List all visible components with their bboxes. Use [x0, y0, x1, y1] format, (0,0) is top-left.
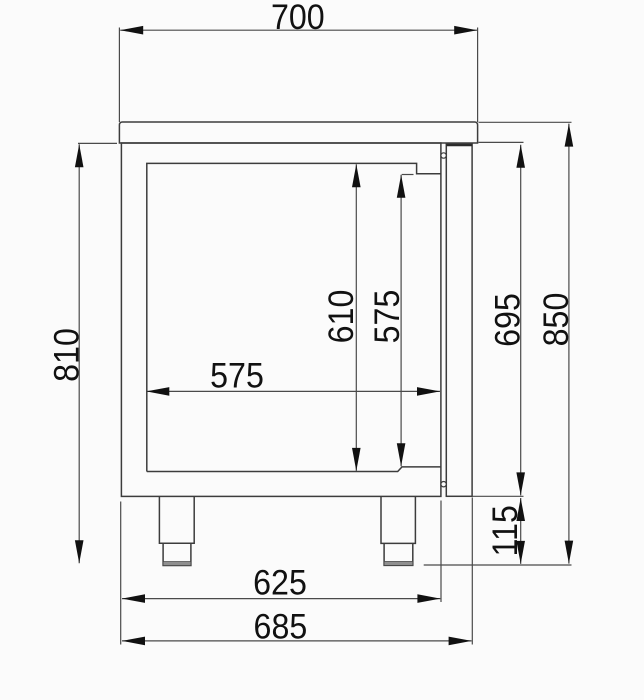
svg-text:700: 700: [271, 0, 325, 37]
svg-text:625: 625: [253, 564, 307, 603]
svg-text:685: 685: [254, 608, 308, 647]
svg-text:850: 850: [538, 293, 577, 347]
svg-text:575: 575: [369, 290, 408, 344]
svg-text:115: 115: [487, 505, 526, 556]
svg-text:575: 575: [210, 357, 264, 396]
svg-text:695: 695: [489, 293, 528, 347]
svg-text:610: 610: [323, 290, 362, 344]
svg-text:810: 810: [48, 328, 87, 382]
